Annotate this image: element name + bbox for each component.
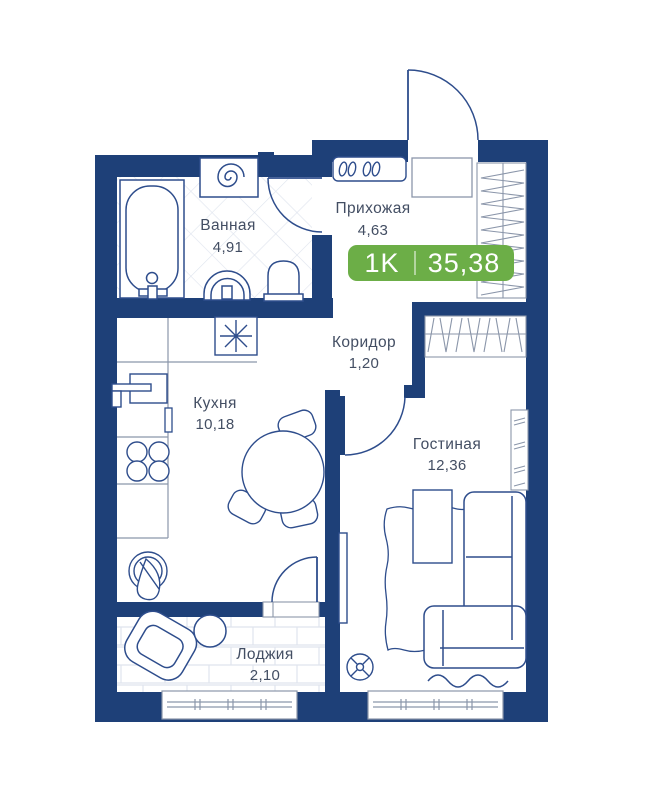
washing-machine-icon <box>200 158 258 197</box>
room-label-living: Гостиная 12,36 <box>413 436 481 474</box>
radiator-wave-icon <box>428 675 508 687</box>
entry-door-icon <box>408 70 478 140</box>
dining-table-icon <box>242 431 324 513</box>
loggia-table-icon <box>194 615 226 647</box>
bathtub-icon <box>120 180 184 299</box>
wall-right <box>526 140 548 722</box>
badge-rooms-label: 1K <box>364 248 399 278</box>
fan-icon <box>347 654 373 680</box>
room-label-corridor: Коридор 1,20 <box>332 334 396 372</box>
bathroom-area: 4,91 <box>213 239 243 256</box>
loggia-door-icon <box>272 557 317 602</box>
living-area: 12,36 <box>427 457 466 474</box>
stove-icon <box>127 442 169 481</box>
room-label-kitchen: Кухня 10,18 <box>193 395 236 433</box>
loggia-door-sill <box>263 602 319 617</box>
wall-left <box>95 155 117 722</box>
coffee-table-icon <box>413 490 452 563</box>
wall-step <box>312 140 332 177</box>
living-shelf-icon <box>511 410 528 490</box>
wall-door-jamb <box>404 385 425 398</box>
living-name: Гостиная <box>413 436 481 453</box>
shoe-rack-icon <box>333 157 406 181</box>
floor-plan-svg: Ванная 4,91 Прихожая 4,63 Коридор 1,20 К… <box>0 0 656 800</box>
kitchen-furniture <box>112 317 324 600</box>
area-badge: 1K 35,38 <box>348 245 514 281</box>
counter-handle-icon <box>165 408 172 432</box>
room-label-hallway: Прихожая 4,63 <box>335 200 410 239</box>
wall-living-left <box>412 302 425 398</box>
loggia-window-icon <box>162 691 297 719</box>
kitchen-name: Кухня <box>193 395 236 412</box>
corridor-name: Коридор <box>332 334 396 351</box>
tv-icon <box>339 533 347 623</box>
fridge-icon <box>112 374 167 407</box>
living-wardrobe-icon <box>425 316 526 357</box>
badge-total-area: 35,38 <box>428 248 501 278</box>
living-furniture <box>339 490 526 687</box>
vent-icon <box>215 317 257 355</box>
door-mat-icon <box>412 158 472 197</box>
living-door-icon <box>337 396 405 455</box>
dining-set-icon <box>225 408 324 530</box>
wall-loggia <box>117 602 267 617</box>
kitchen-sink-icon <box>129 552 167 600</box>
loggia-area: 2,10 <box>250 667 280 684</box>
kitchen-area: 10,18 <box>195 416 234 433</box>
corridor-area: 1,20 <box>349 355 379 372</box>
toilet-icon <box>264 261 303 301</box>
loggia-name: Лоджия <box>236 646 293 663</box>
hallway-area: 4,63 <box>358 222 388 239</box>
hallway-name: Прихожая <box>335 200 410 217</box>
floor-plan-stage: Ванная 4,91 Прихожая 4,63 Коридор 1,20 К… <box>0 0 656 800</box>
wall-vent-dash <box>258 152 274 159</box>
wall-living-top <box>412 302 528 316</box>
bathroom-name: Ванная <box>200 217 256 234</box>
living-window-icon <box>368 691 503 719</box>
